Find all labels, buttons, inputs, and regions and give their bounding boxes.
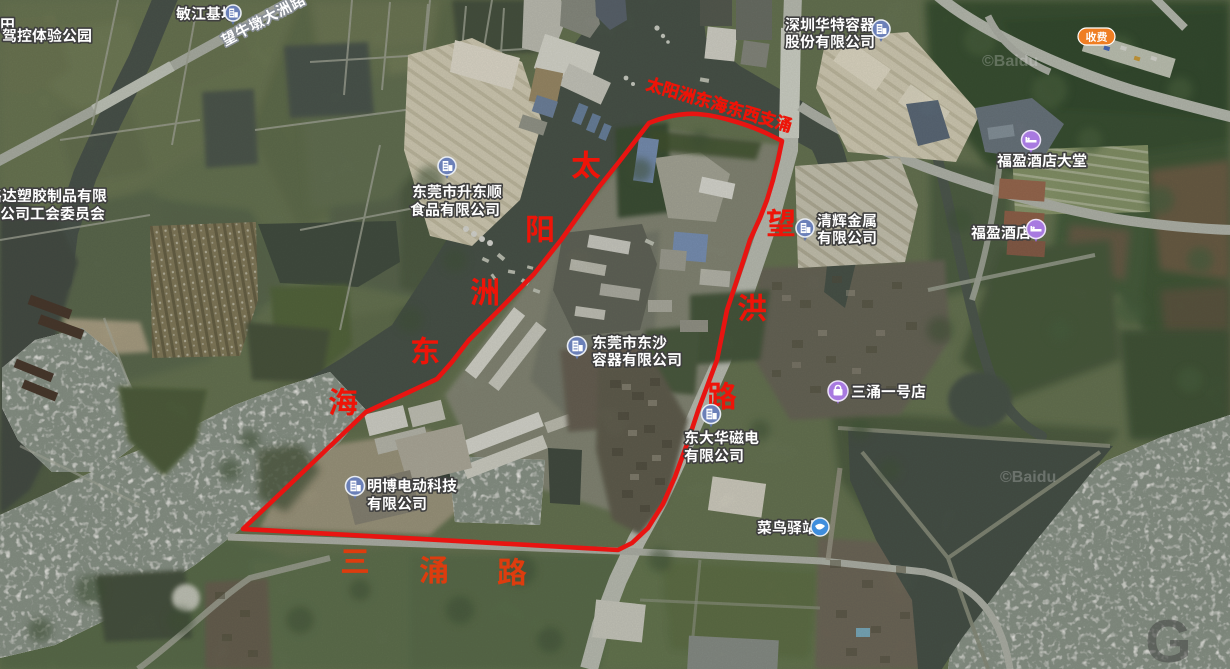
svg-text:©Baidu: ©Baidu bbox=[1000, 469, 1056, 486]
svg-text:G: G bbox=[1145, 608, 1192, 669]
svg-text:©Baidu: ©Baidu bbox=[982, 53, 1038, 70]
